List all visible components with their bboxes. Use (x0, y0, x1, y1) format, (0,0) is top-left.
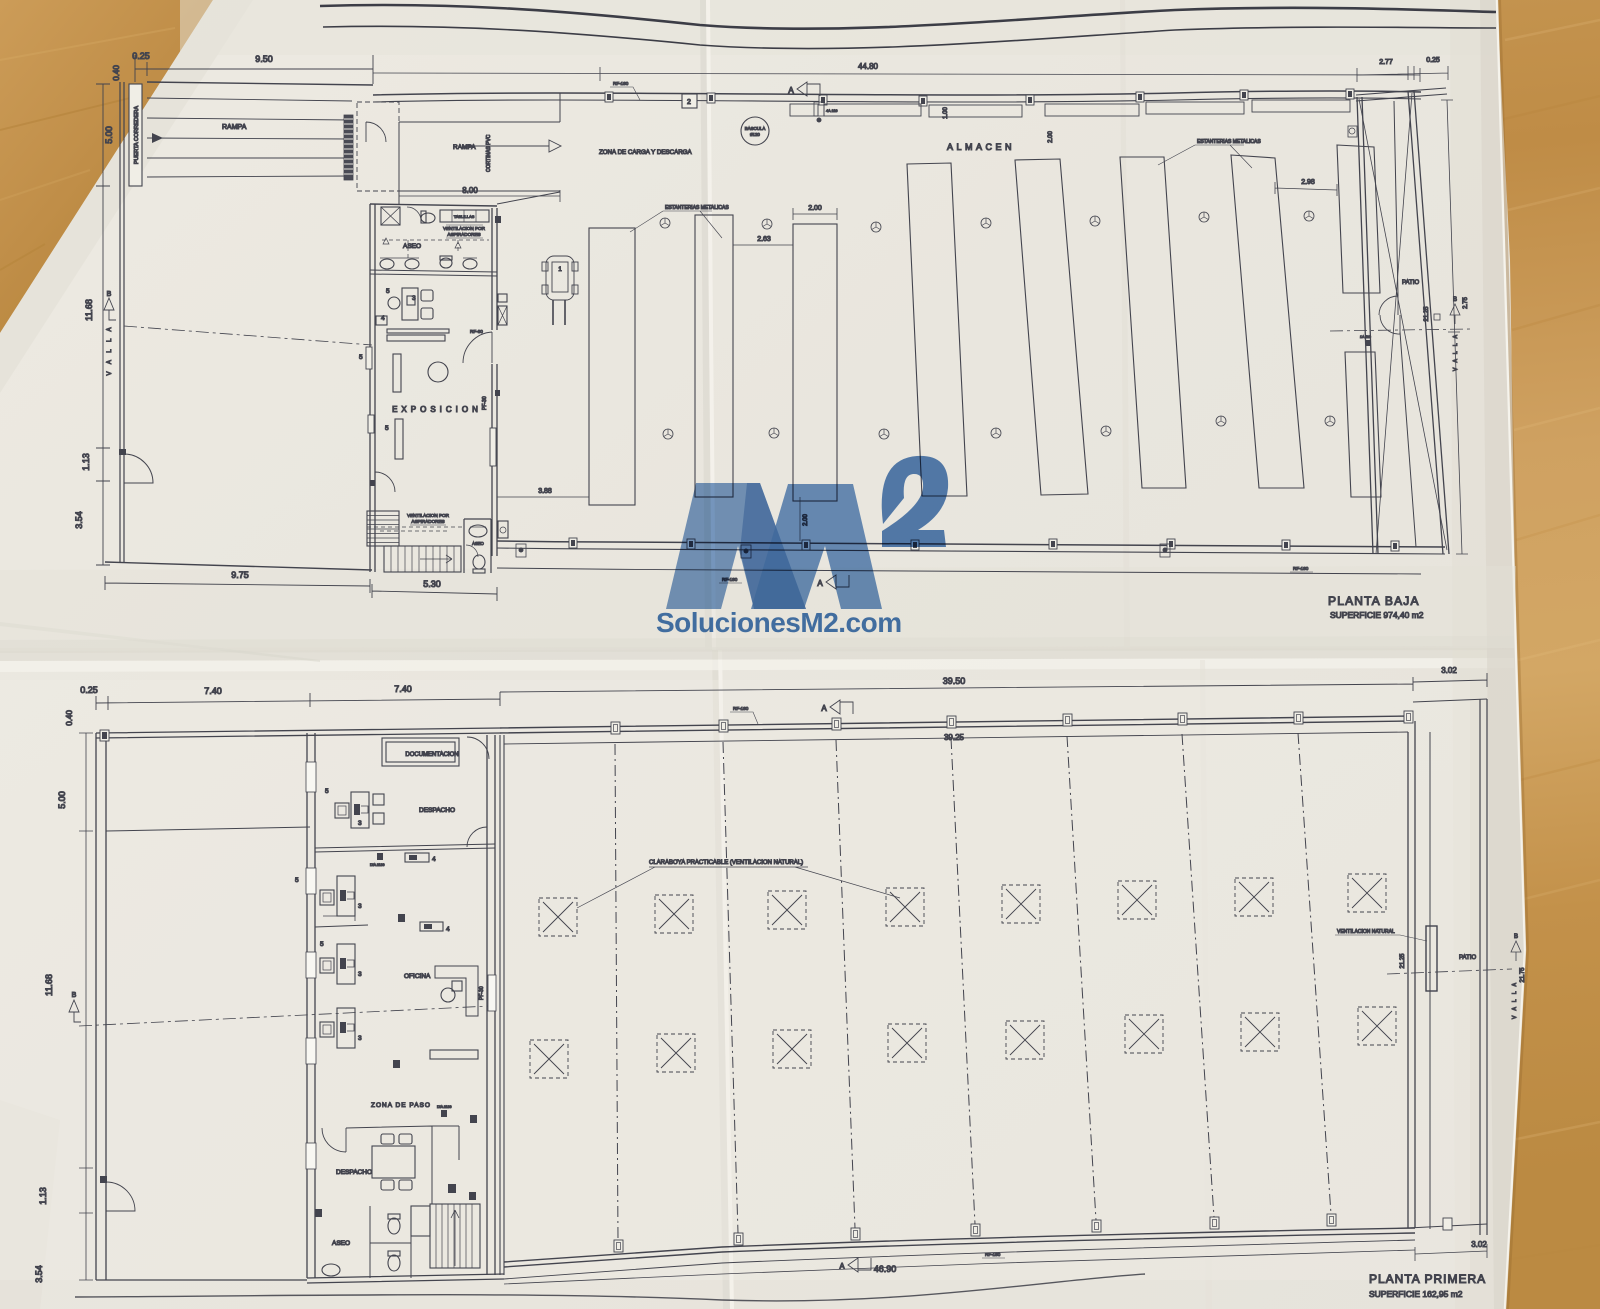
svg-text:3: 3 (358, 820, 362, 827)
svg-text:B: B (107, 291, 112, 298)
svg-text:PATIO: PATIO (1402, 280, 1419, 286)
svg-text:1.13: 1.13 (81, 453, 91, 471)
svg-text:3: 3 (358, 903, 362, 910)
svg-text:5: 5 (385, 425, 389, 432)
svg-text:4: 4 (432, 856, 436, 863)
svg-text:3.88: 3.88 (538, 488, 552, 495)
svg-text:3: 3 (358, 1035, 362, 1042)
svg-text:0.25: 0.25 (132, 51, 150, 61)
svg-text:0.25: 0.25 (1426, 57, 1440, 64)
svg-text:3.02: 3.02 (1471, 1240, 1487, 1249)
svg-text:DESPACHO: DESPACHO (336, 1169, 372, 1176)
svg-text:2.00: 2.00 (1048, 131, 1054, 143)
svg-text:B: B (1453, 297, 1457, 303)
svg-text:B: B (1514, 934, 1518, 940)
svg-text:PF-30: PF-30 (479, 986, 485, 1000)
svg-text:CLARABOYA PRACTICABLE (VENTILA: CLARABOYA PRACTICABLE (VENTILACION NATUR… (649, 860, 803, 866)
svg-text:44.80: 44.80 (858, 62, 879, 71)
svg-text:ZONA DE PASO: ZONA DE PASO (371, 1102, 431, 1109)
svg-text:DOCUMENTACION: DOCUMENTACION (405, 752, 458, 758)
svg-text:ALMACEN: ALMACEN (947, 142, 1015, 152)
svg-text:ASPIRADORES: ASPIRADORES (447, 232, 480, 237)
svg-text:DIA 1130: DIA 1130 (370, 863, 385, 867)
svg-text:8.00: 8.00 (462, 186, 478, 195)
svg-text:ASEO: ASEO (472, 541, 484, 546)
svg-text:PUERTA CORREDERA: PUERTA CORREDERA (134, 106, 140, 165)
svg-text:PF-30: PF-30 (482, 396, 488, 410)
svg-text:3.54: 3.54 (74, 511, 84, 529)
svg-text:1.13: 1.13 (38, 1187, 48, 1205)
svg-text:4: 4 (446, 926, 450, 933)
svg-text:EXPOSICION: EXPOSICION (392, 405, 482, 414)
svg-text:5: 5 (359, 354, 363, 361)
svg-text:SUPERFICIE 974,40 m2: SUPERFICIE 974,40 m2 (1330, 610, 1424, 620)
svg-text:A: A (821, 704, 827, 713)
svg-text:7.40: 7.40 (204, 686, 222, 696)
svg-text:2.98: 2.98 (1301, 179, 1315, 186)
svg-text:#120: #120 (750, 132, 760, 137)
svg-text:A: A (788, 86, 794, 95)
svg-text:5: 5 (325, 788, 329, 795)
svg-text:5.00: 5.00 (104, 126, 114, 144)
svg-text:ASPIRADORES: ASPIRADORES (411, 519, 444, 524)
svg-text:3: 3 (412, 295, 416, 302)
svg-text:9.75: 9.75 (231, 570, 249, 580)
svg-text:2.00: 2.00 (808, 205, 822, 212)
svg-text:VENTILACION POR: VENTILACION POR (443, 226, 486, 231)
svg-text:11.68: 11.68 (44, 974, 54, 996)
svg-text:ZONA DE CARGA Y DESCARGA: ZONA DE CARGA Y DESCARGA (599, 149, 692, 156)
svg-text:1A 110: 1A 110 (1360, 335, 1371, 339)
svg-text:DESPACHO: DESPACHO (419, 807, 455, 814)
svg-text:39.25: 39.25 (944, 733, 965, 742)
svg-text:SUPERFICIE 162,95 m2: SUPERFICIE 162,95 m2 (1369, 1289, 1463, 1299)
svg-text:PATIO: PATIO (1459, 955, 1476, 961)
svg-text:RF-180: RF-180 (985, 1252, 1001, 1257)
svg-text:TABLILLAS: TABLILLAS (454, 214, 475, 219)
svg-text:A: A (817, 579, 823, 588)
svg-text:ASEO: ASEO (403, 243, 421, 250)
svg-text:V A L L A: V A L L A (1453, 333, 1459, 371)
svg-text:VENTILACION POR: VENTILACION POR (407, 513, 450, 518)
svg-text:RF-180: RF-180 (613, 81, 629, 86)
svg-text:9.50: 9.50 (255, 54, 273, 64)
svg-text:3.54: 3.54 (34, 1265, 44, 1283)
svg-text:11.68: 11.68 (84, 299, 94, 321)
svg-text:A: A (839, 1262, 845, 1271)
svg-text:2.75: 2.75 (1463, 297, 1469, 309)
svg-text:2.77: 2.77 (1379, 59, 1393, 66)
svg-text:0.25: 0.25 (80, 685, 98, 695)
svg-text:5.30: 5.30 (423, 579, 441, 589)
svg-text:1.00: 1.00 (943, 107, 949, 119)
svg-text:SolucionesM2.com: SolucionesM2.com (656, 607, 902, 638)
svg-text:PLANTA BAJA: PLANTA BAJA (1328, 594, 1420, 608)
svg-text:PLANTA PRIMERA: PLANTA PRIMERA (1369, 1272, 1486, 1286)
svg-text:2: 2 (687, 99, 691, 106)
svg-text:21.25: 21.25 (1424, 306, 1430, 322)
svg-text:2.63: 2.63 (757, 236, 771, 243)
svg-text:OFICINA: OFICINA (404, 973, 431, 980)
svg-text:0.40: 0.40 (65, 710, 74, 726)
svg-text:3.02: 3.02 (1441, 666, 1457, 675)
svg-text:7.40: 7.40 (394, 684, 412, 694)
svg-text:B: B (72, 992, 77, 999)
svg-text:ASEO: ASEO (332, 1240, 350, 1247)
svg-text:DIA 1130: DIA 1130 (437, 1105, 452, 1109)
svg-text:46.90: 46.90 (874, 1264, 897, 1274)
svg-text:RAMPA: RAMPA (453, 144, 476, 151)
svg-text:3: 3 (358, 971, 362, 978)
svg-text:0.40: 0.40 (112, 65, 121, 81)
svg-text:VENTILACION NATURAL: VENTILACION NATURAL (1337, 929, 1395, 935)
svg-text:BASCULA: BASCULA (745, 126, 766, 131)
svg-text:RF-180: RF-180 (733, 706, 749, 711)
svg-text:ESTANTERIAS METALICAS: ESTANTERIAS METALICAS (1197, 139, 1261, 145)
svg-text:39.50: 39.50 (943, 676, 966, 686)
svg-text:4A 110: 4A 110 (826, 109, 838, 113)
svg-text:21.75: 21.75 (1520, 967, 1526, 983)
svg-text:RAMPA: RAMPA (222, 124, 247, 131)
svg-text:5.00: 5.00 (57, 791, 67, 809)
svg-text:V A L L A: V A L L A (1512, 981, 1518, 1019)
svg-text:ESTANTERIAS METALICAS: ESTANTERIAS METALICAS (665, 205, 729, 211)
svg-text:5: 5 (386, 288, 390, 295)
svg-text:CORTINAS PVC: CORTINAS PVC (486, 134, 492, 172)
svg-text:5: 5 (295, 877, 299, 884)
svg-text:21.25: 21.25 (1400, 953, 1406, 969)
svg-text:RF-60: RF-60 (470, 329, 483, 334)
svg-text:V A L L A: V A L L A (107, 325, 113, 376)
svg-text:RF-180: RF-180 (1293, 566, 1309, 571)
svg-text:5: 5 (320, 941, 324, 948)
